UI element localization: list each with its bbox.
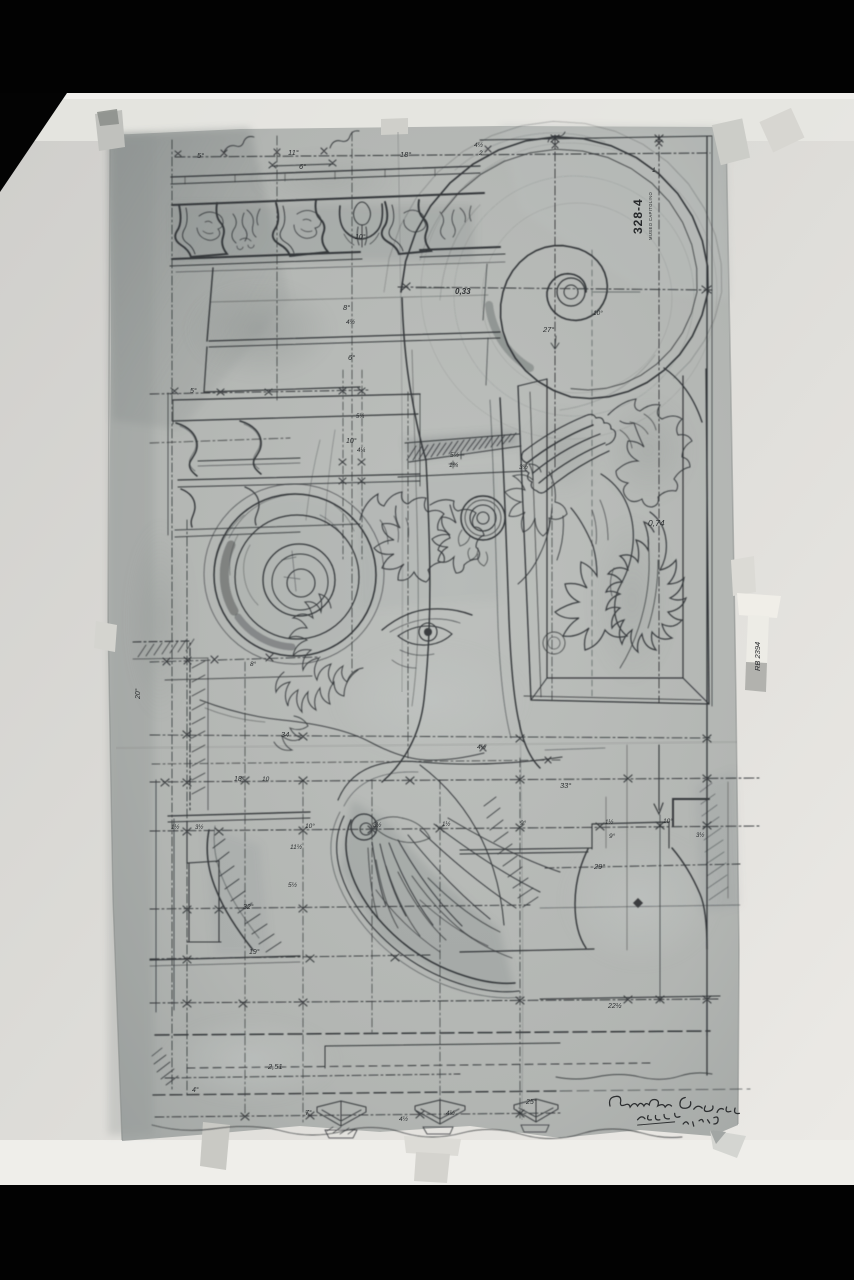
svg-text:1½: 1½	[605, 819, 613, 826]
svg-text:22½: 22½	[607, 1002, 622, 1010]
svg-text:3½: 3½	[195, 824, 203, 831]
svg-text:0,74: 0,74	[648, 518, 665, 528]
svg-text:1½: 1½	[171, 824, 179, 831]
svg-text:5¼: 5¼	[356, 414, 364, 420]
svg-text:4½: 4½	[399, 1115, 409, 1123]
svg-text:10°: 10°	[355, 233, 366, 241]
svg-text:3½: 3½	[519, 463, 529, 471]
svg-text:4½: 4½	[346, 318, 356, 326]
svg-text:20°: 20°	[134, 688, 142, 700]
svg-text:18°: 18°	[400, 150, 411, 159]
svg-text:6°: 6°	[299, 162, 306, 171]
svg-text:0,33: 0,33	[455, 287, 471, 296]
svg-text:3½: 3½	[696, 832, 704, 839]
svg-text:1¼: 1¼	[449, 462, 459, 469]
svg-text:11°: 11°	[288, 148, 299, 157]
svg-text:32°: 32°	[243, 903, 254, 911]
svg-text:6°: 6°	[348, 353, 355, 362]
svg-text:10: 10	[262, 776, 270, 783]
svg-text:19°: 19°	[249, 948, 260, 956]
svg-text:5½: 5½	[288, 881, 298, 889]
svg-text:3½: 3½	[373, 822, 381, 829]
svg-text:10°: 10°	[305, 822, 315, 830]
svg-text:18°: 18°	[234, 775, 245, 783]
svg-text:MUSEO CAPITOLINO: MUSEO CAPITOLINO	[648, 191, 653, 240]
svg-text:27°: 27°	[542, 325, 554, 334]
svg-text:8°: 8°	[343, 303, 350, 312]
svg-text:8°: 8°	[250, 660, 257, 668]
svg-text:2: 2	[478, 150, 483, 157]
svg-text:4½: 4½	[446, 1109, 456, 1117]
svg-text:34: 34	[281, 730, 289, 739]
svg-text:10°: 10°	[346, 437, 357, 445]
svg-text:9°: 9°	[520, 819, 527, 827]
svg-text:4½: 4½	[474, 141, 484, 149]
svg-text:10°: 10°	[663, 817, 673, 825]
svg-text:5°: 5°	[197, 151, 204, 160]
svg-text:328-4: 328-4	[631, 198, 645, 234]
svg-text:1: 1	[652, 167, 656, 174]
svg-text:1½: 1½	[442, 821, 450, 828]
svg-text:25°: 25°	[525, 1098, 537, 1106]
svg-text:2,51: 2,51	[267, 1062, 283, 1071]
svg-text:29°: 29°	[593, 862, 605, 871]
svg-text:11½: 11½	[290, 843, 303, 851]
svg-text:5°: 5°	[190, 387, 197, 395]
svg-text:9°: 9°	[609, 832, 616, 840]
svg-text:33°: 33°	[560, 781, 571, 790]
svg-text:4½: 4½	[477, 743, 487, 751]
svg-text:7°: 7°	[305, 1109, 312, 1117]
svg-text:5½: 5½	[450, 451, 460, 459]
svg-text:4¼: 4¼	[357, 448, 365, 454]
svg-text:10°: 10°	[593, 309, 603, 317]
svg-text:RB 2394: RB 2394	[753, 642, 762, 671]
svg-text:4°: 4°	[192, 1086, 199, 1094]
